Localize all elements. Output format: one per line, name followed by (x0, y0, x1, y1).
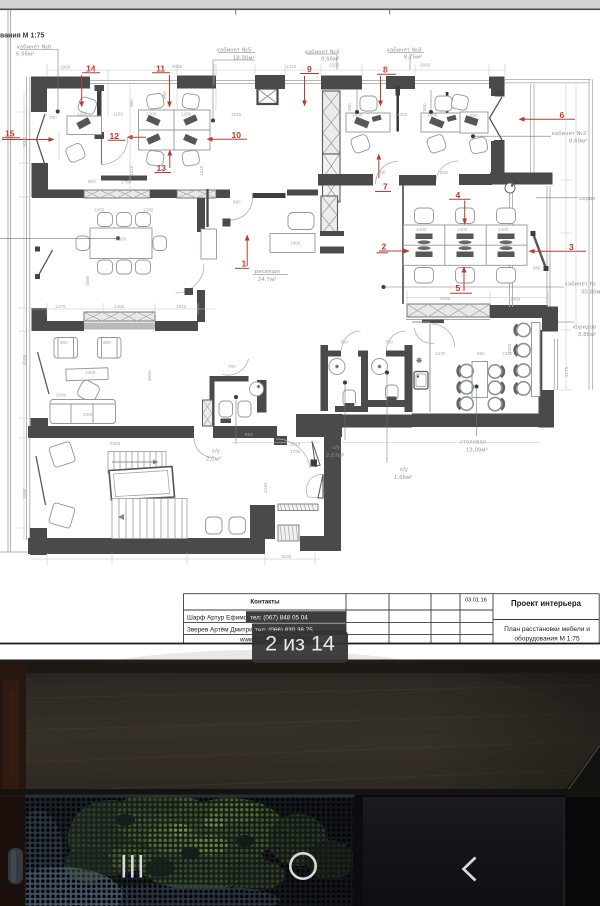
svg-text:1130: 1130 (113, 112, 123, 117)
svg-text:13,09м²: 13,09м² (466, 448, 488, 454)
svg-text:1630: 1630 (281, 554, 292, 559)
svg-text:865: 865 (129, 99, 134, 107)
svg-text:2335: 2335 (329, 62, 340, 67)
svg-text:с/у: с/у (400, 467, 408, 473)
svg-text:2,07м²: 2,07м² (326, 453, 344, 459)
svg-text:810: 810 (245, 432, 253, 437)
svg-text:1400: 1400 (498, 227, 509, 232)
svg-text:2300: 2300 (83, 412, 94, 417)
svg-text:1400: 1400 (416, 227, 427, 232)
svg-text:7: 7 (383, 182, 388, 192)
svg-text:1400: 1400 (352, 113, 363, 118)
svg-text:3,88м²: 3,88м² (578, 332, 596, 338)
svg-text:оборудования М 1:75: оборудования М 1:75 (514, 635, 580, 643)
svg-text:18,30м²: 18,30м² (233, 56, 255, 62)
svg-text:30,85м: 30,85м (581, 290, 600, 296)
svg-text:1680: 1680 (85, 275, 90, 286)
svg-text:9: 9 (307, 64, 312, 74)
svg-text:8,60м²: 8,60м² (569, 139, 587, 145)
svg-text:2800: 2800 (116, 237, 127, 242)
svg-text:1200: 1200 (181, 112, 192, 117)
svg-text:Контакты: Контакты (250, 599, 279, 606)
svg-text:с/у: с/у (332, 445, 340, 451)
svg-text:Проект интерьера: Проект интерьера (511, 599, 582, 608)
svg-text:1400: 1400 (457, 227, 468, 232)
svg-text:10: 10 (232, 130, 242, 140)
svg-text:с/у: с/у (212, 449, 220, 455)
svg-text:❋: ❋ (416, 356, 423, 365)
svg-text:3390: 3390 (22, 488, 27, 499)
svg-text:1800: 1800 (290, 241, 301, 246)
svg-text:1: 1 (242, 259, 247, 269)
svg-text:3: 3 (569, 242, 574, 252)
svg-text:11: 11 (156, 64, 165, 74)
svg-text:800: 800 (422, 103, 427, 111)
svg-text:5: 5 (456, 283, 461, 293)
svg-text:2895: 2895 (440, 296, 451, 301)
svg-text:кабинет №3: кабинет №3 (387, 48, 421, 54)
svg-text:655: 655 (477, 351, 485, 356)
svg-text:3175: 3175 (564, 366, 569, 377)
svg-text:кабинет №6: кабинет №6 (17, 45, 51, 51)
svg-text:700: 700 (49, 115, 57, 120)
svg-text:1200: 1200 (77, 112, 88, 117)
svg-text:1470: 1470 (55, 304, 66, 309)
svg-text:1750: 1750 (121, 180, 132, 185)
svg-text:24,7м²: 24,7м² (258, 277, 276, 283)
svg-text:930: 930 (470, 113, 478, 118)
svg-text:ресепшн: ресепшн (255, 269, 280, 275)
svg-text:650: 650 (88, 179, 96, 184)
svg-text:1880: 1880 (510, 297, 521, 302)
svg-text:15: 15 (5, 129, 15, 139)
svg-text:3000: 3000 (147, 370, 152, 381)
svg-text:кабинет №2: кабинет №2 (552, 131, 586, 137)
svg-text:12: 12 (110, 131, 120, 141)
svg-text:2895: 2895 (420, 62, 431, 67)
svg-text:1400: 1400 (85, 370, 96, 375)
svg-text:1310: 1310 (199, 165, 204, 176)
svg-text:1370: 1370 (435, 351, 446, 356)
svg-text:1080: 1080 (507, 343, 512, 354)
svg-text:4: 4 (456, 190, 461, 200)
svg-text:1400: 1400 (427, 113, 438, 118)
svg-text:700: 700 (385, 340, 393, 345)
svg-text:03.01.16: 03.01.16 (465, 598, 487, 604)
svg-text:2 из 14: 2 из 14 (265, 632, 335, 656)
svg-text:950: 950 (162, 91, 167, 99)
svg-text:8,75м²: 8,75м² (404, 55, 422, 61)
svg-text:1,66м²: 1,66м² (394, 475, 412, 481)
svg-text:2,0м²: 2,0м² (206, 457, 221, 463)
svg-text:6: 6 (560, 110, 565, 120)
svg-text:5405: 5405 (110, 441, 121, 446)
svg-text:2000: 2000 (56, 393, 67, 398)
svg-text:тел: (067) 848 05 04: тел: (067) 848 05 04 (250, 615, 308, 622)
svg-text:8: 8 (383, 65, 388, 75)
svg-text:серве: серве (579, 196, 596, 202)
svg-text:кабинет №: кабинет № (565, 282, 596, 288)
svg-text:600: 600 (60, 340, 68, 345)
svg-text:14: 14 (86, 64, 96, 74)
svg-text:895: 895 (233, 200, 241, 205)
svg-text:5055: 5055 (172, 64, 183, 69)
svg-text:6,95м²: 6,95м² (16, 52, 34, 58)
svg-text:900: 900 (440, 170, 448, 175)
svg-text:4185: 4185 (22, 354, 27, 365)
svg-text:1200: 1200 (146, 112, 157, 117)
svg-text:1310: 1310 (129, 165, 134, 176)
svg-text:800: 800 (347, 103, 352, 111)
svg-text:700: 700 (340, 340, 348, 345)
svg-text:1240: 1240 (263, 482, 268, 493)
svg-text:вания М 1:75: вания М 1:75 (0, 33, 45, 40)
svg-text:1900: 1900 (60, 64, 71, 69)
svg-text:1010: 1010 (290, 442, 301, 447)
svg-text:2455: 2455 (114, 304, 125, 309)
svg-text:3080: 3080 (22, 136, 27, 147)
svg-text:2: 2 (382, 242, 387, 252)
svg-text:кабинет №4: кабинет №4 (305, 50, 340, 56)
svg-text:1030: 1030 (143, 208, 154, 213)
svg-text:1810: 1810 (176, 304, 187, 309)
svg-text:600: 600 (103, 340, 111, 345)
svg-text:1000: 1000 (397, 112, 408, 117)
svg-text:1730: 1730 (290, 449, 301, 454)
svg-text:коридор: коридор (573, 325, 597, 331)
svg-text:700: 700 (228, 364, 236, 369)
svg-text:1030: 1030 (94, 208, 105, 213)
svg-text:13: 13 (157, 163, 167, 173)
svg-text:900: 900 (378, 170, 386, 175)
svg-text:2410: 2410 (286, 64, 297, 69)
svg-text:1525: 1525 (231, 112, 242, 117)
svg-text:План расстановки мебели и: План расстановки мебели и (504, 625, 590, 633)
svg-text:кабинет №5: кабинет №5 (217, 48, 251, 54)
svg-text:685: 685 (533, 266, 541, 271)
